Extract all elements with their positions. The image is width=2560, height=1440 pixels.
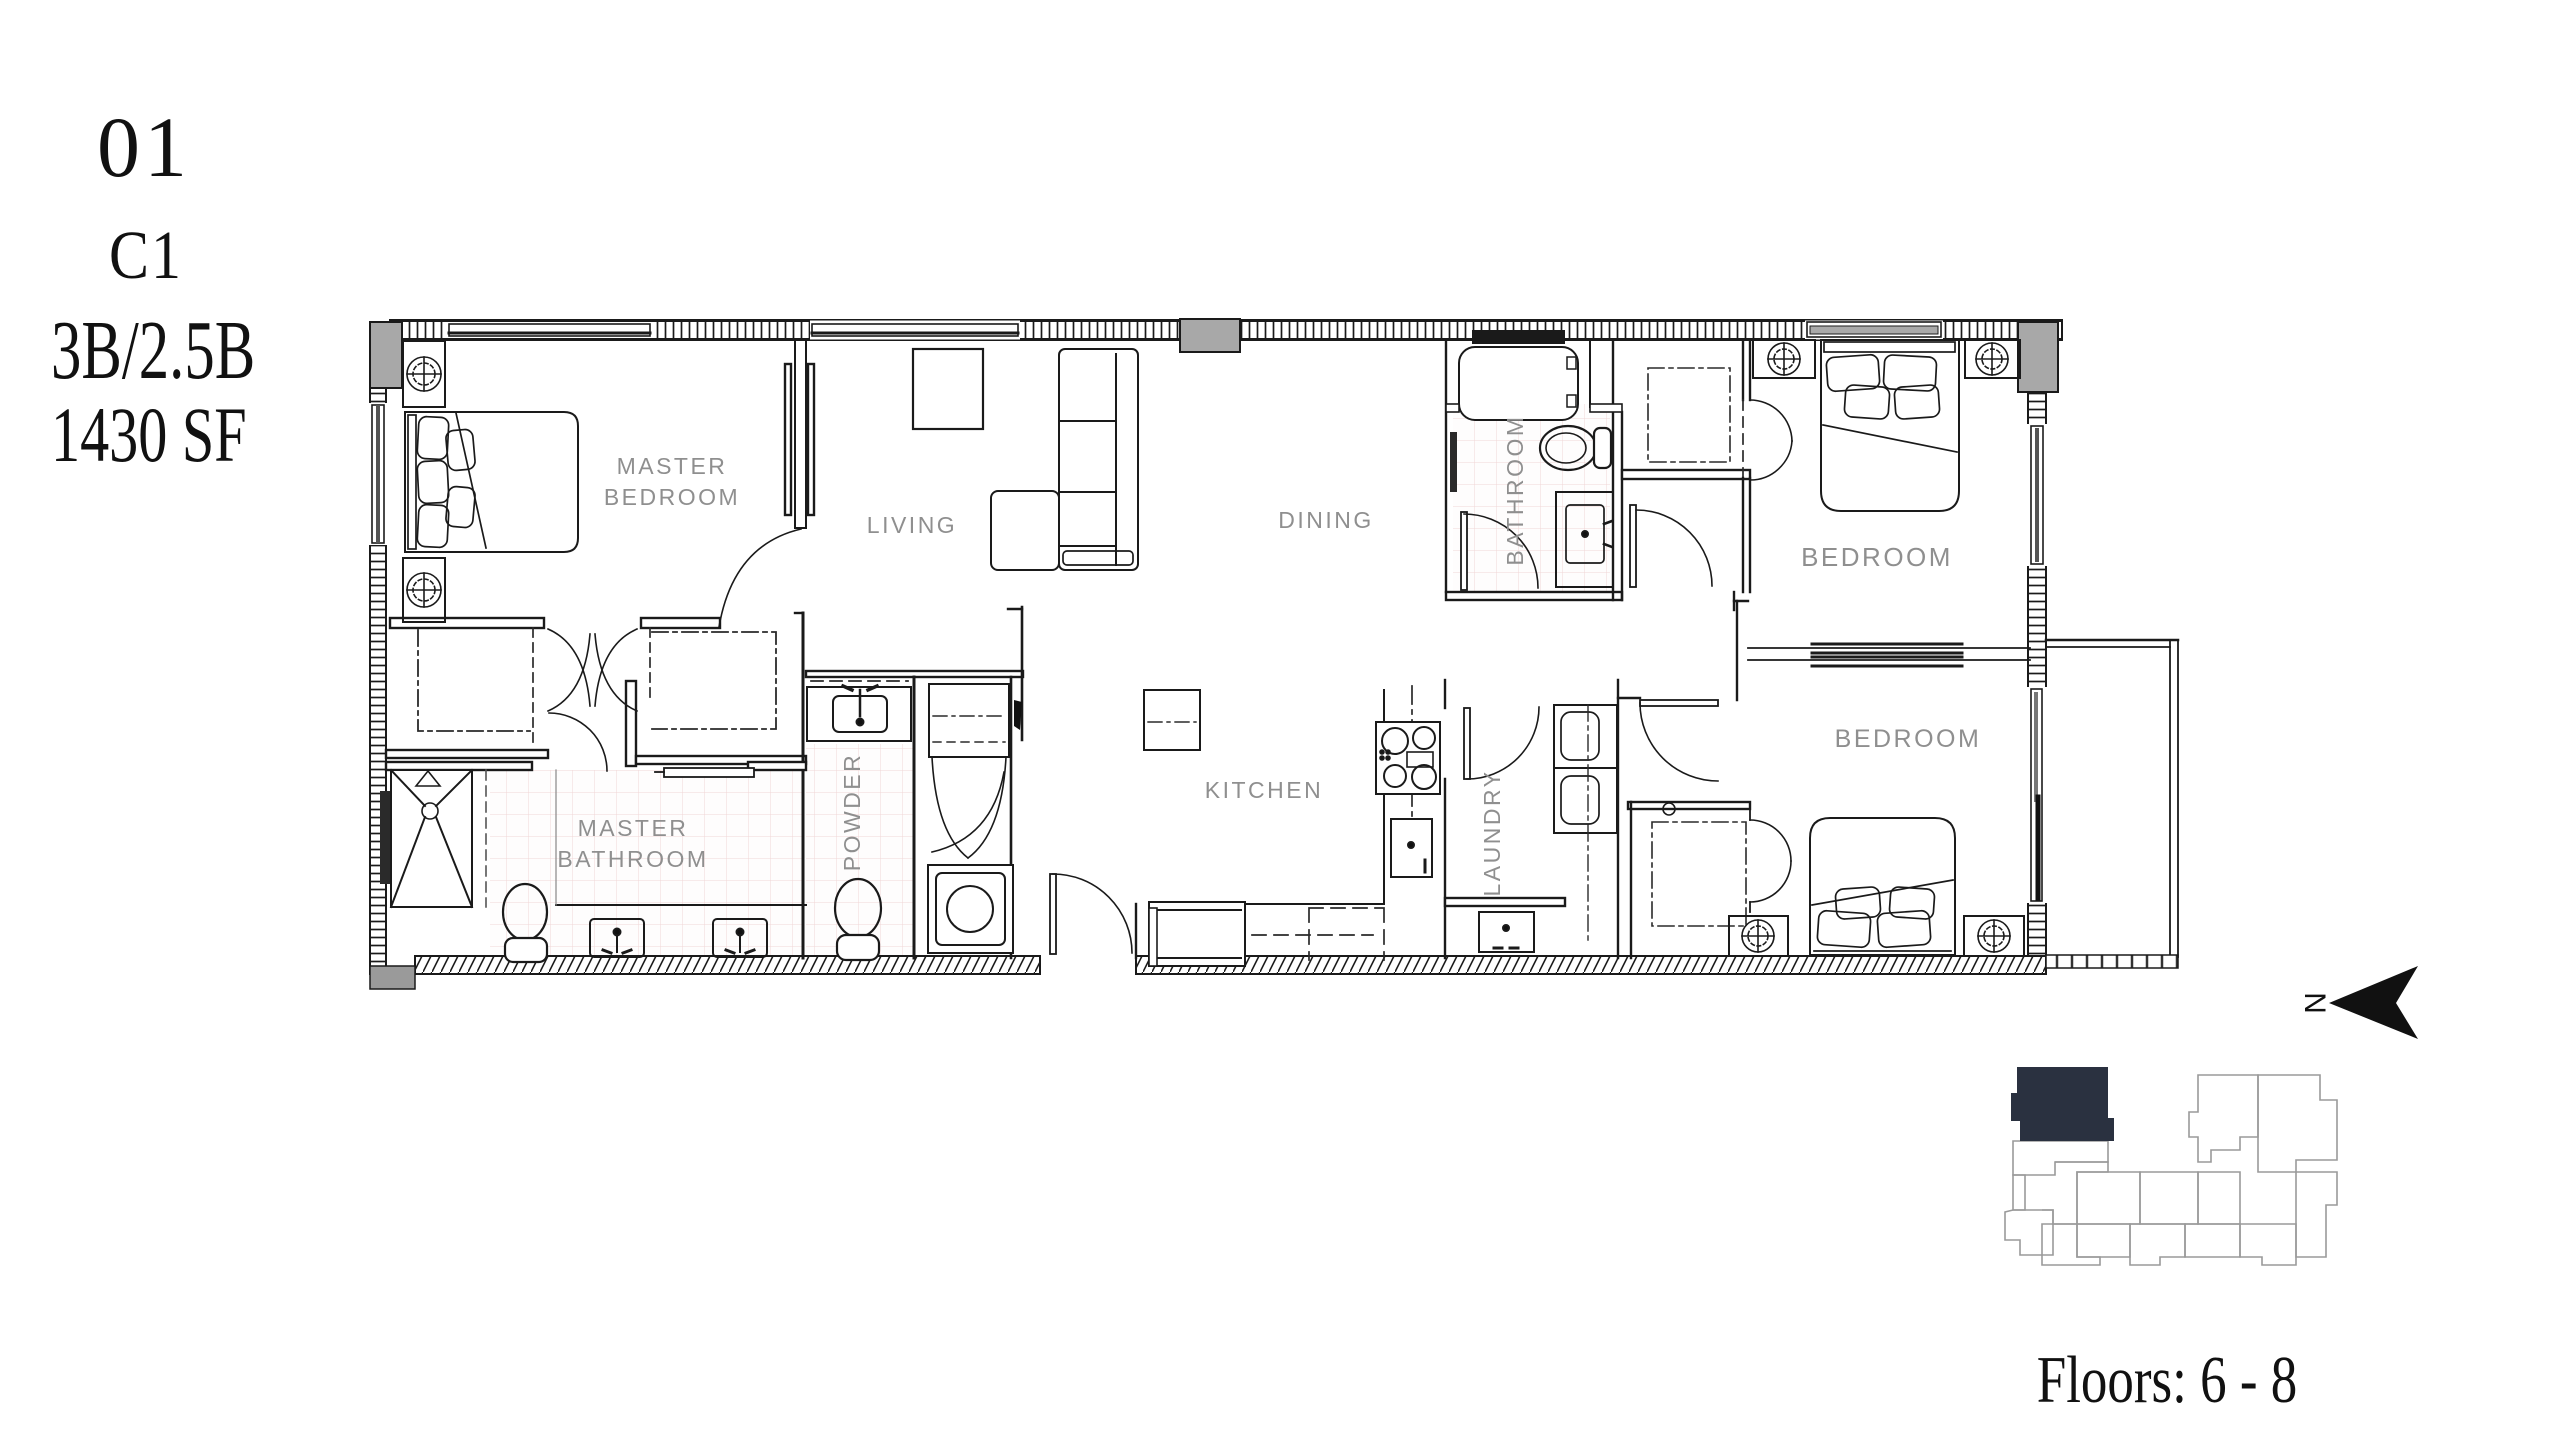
svg-text:MASTER: MASTER [617, 453, 728, 479]
svg-text:DINING: DINING [1278, 507, 1374, 533]
svg-text:LAUNDRY: LAUNDRY [1479, 770, 1505, 897]
svg-text:POWDER: POWDER [839, 753, 865, 872]
svg-text:BEDROOM: BEDROOM [604, 484, 740, 510]
svg-text:C1: C1 [109, 216, 183, 293]
svg-text:BATHROOM: BATHROOM [1502, 414, 1528, 565]
svg-text:Floors: 6 - 8: Floors: 6 - 8 [2037, 1343, 2298, 1416]
svg-text:BEDROOM: BEDROOM [1835, 725, 1982, 753]
svg-text:LIVING: LIVING [867, 512, 957, 538]
svg-text:MASTER: MASTER [578, 815, 689, 841]
svg-text:01: 01 [97, 99, 191, 195]
svg-text:BATHROOM: BATHROOM [557, 846, 708, 872]
svg-text:3B/2.5B: 3B/2.5B [51, 304, 255, 397]
svg-text:1430 SF: 1430 SF [51, 392, 247, 478]
svg-text:N: N [2298, 992, 2331, 1014]
svg-text:BEDROOM: BEDROOM [1801, 542, 1953, 572]
svg-text:KITCHEN: KITCHEN [1205, 777, 1323, 803]
